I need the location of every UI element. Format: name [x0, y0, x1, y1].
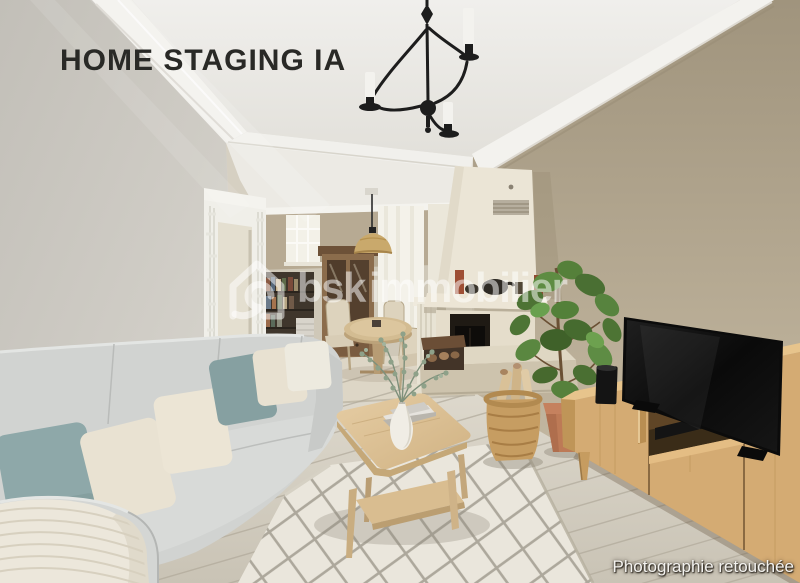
log-bench	[421, 335, 466, 370]
photo-retouched-label: Photographie retouchée	[613, 557, 794, 577]
back-window-left	[284, 215, 322, 266]
listing-photo: HOME STAGING IA bsk immobilier Photograp…	[0, 0, 800, 583]
home-staging-label: HOME STAGING IA	[60, 44, 346, 78]
speaker	[595, 365, 617, 405]
room-scene-illustration	[0, 0, 800, 583]
